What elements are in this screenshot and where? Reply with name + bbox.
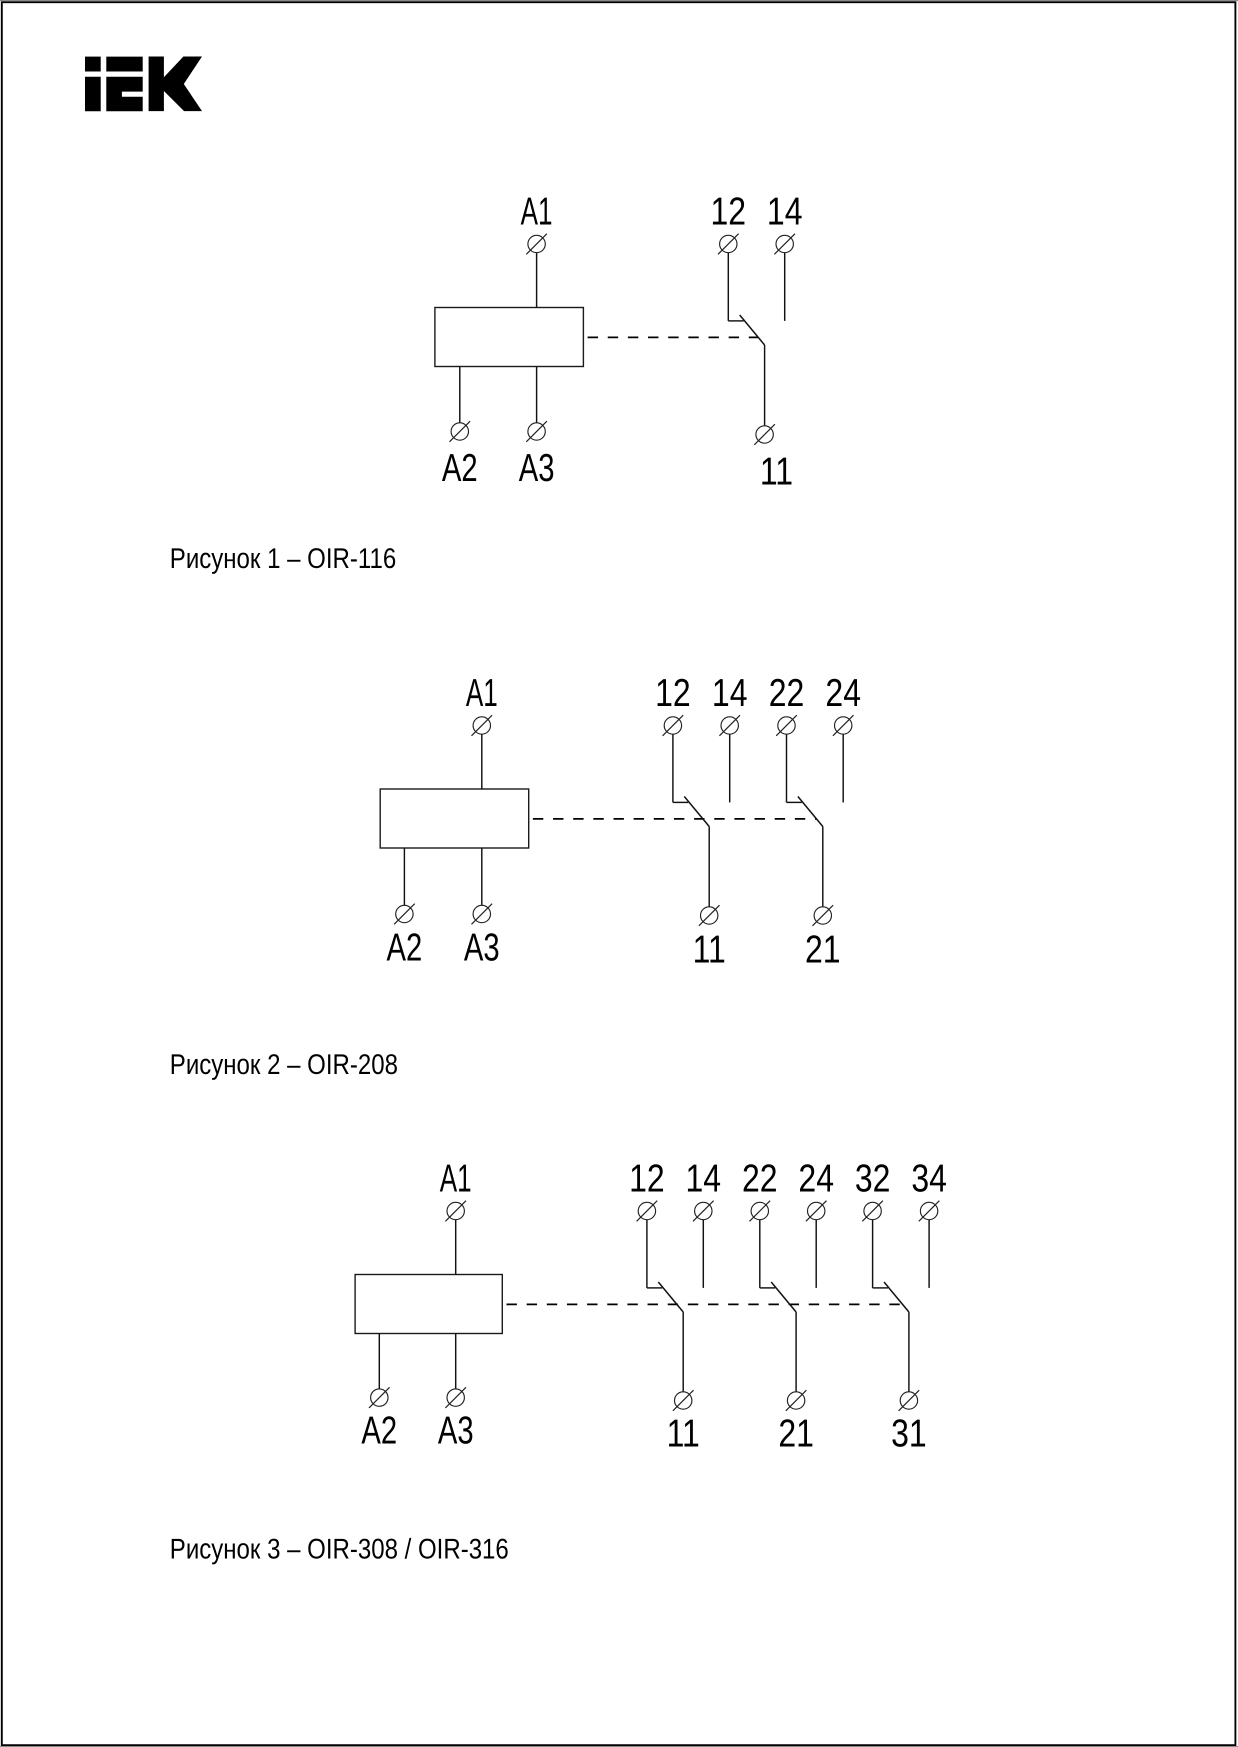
svg-text:22: 22 bbox=[742, 1158, 778, 1201]
svg-text:A1: A1 bbox=[521, 191, 553, 234]
svg-text:12: 12 bbox=[629, 1158, 665, 1201]
svg-text:11: 11 bbox=[693, 929, 726, 972]
svg-text:A1: A1 bbox=[466, 672, 498, 715]
svg-text:A2: A2 bbox=[387, 927, 423, 970]
svg-text:34: 34 bbox=[911, 1158, 947, 1201]
svg-text:14: 14 bbox=[686, 1158, 722, 1201]
svg-text:11: 11 bbox=[760, 451, 793, 494]
svg-text:22: 22 bbox=[769, 672, 805, 715]
svg-text:12: 12 bbox=[655, 672, 691, 715]
svg-text:A2: A2 bbox=[442, 447, 478, 490]
svg-text:A3: A3 bbox=[438, 1410, 474, 1453]
svg-text:11: 11 bbox=[667, 1413, 700, 1456]
svg-text:A3: A3 bbox=[464, 927, 500, 970]
svg-text:Рисунок 3 – OIR-308 / OIR-316: Рисунок 3 – OIR-308 / OIR-316 bbox=[170, 1534, 509, 1566]
svg-text:32: 32 bbox=[855, 1158, 891, 1201]
svg-text:14: 14 bbox=[712, 672, 748, 715]
svg-text:24: 24 bbox=[825, 672, 861, 715]
svg-text:Рисунок 2 – OIR-208: Рисунок 2 – OIR-208 bbox=[170, 1049, 398, 1081]
svg-text:Рисунок 1 – OIR-116: Рисунок 1 – OIR-116 bbox=[170, 543, 396, 575]
svg-text:A1: A1 bbox=[440, 1158, 472, 1201]
svg-text:A2: A2 bbox=[361, 1410, 397, 1453]
svg-text:21: 21 bbox=[805, 929, 841, 972]
svg-text:14: 14 bbox=[767, 191, 803, 234]
svg-text:24: 24 bbox=[798, 1158, 834, 1201]
svg-text:A3: A3 bbox=[519, 447, 555, 490]
svg-text:12: 12 bbox=[711, 191, 747, 234]
svg-text:21: 21 bbox=[778, 1413, 814, 1456]
svg-text:31: 31 bbox=[891, 1413, 927, 1456]
